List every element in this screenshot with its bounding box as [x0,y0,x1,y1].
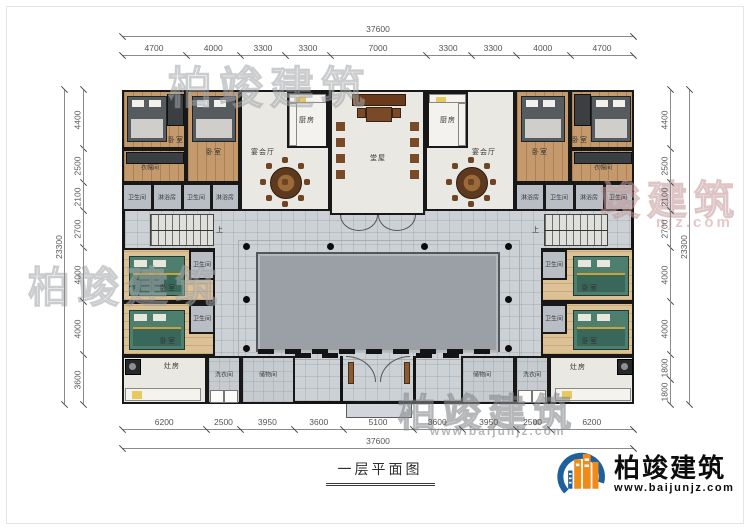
bed [129,310,185,350]
room-label-storage: 储物间 [473,370,491,379]
hall-altar-table [352,94,406,106]
room-label-storage: 储物间 [259,370,277,379]
room-label-bath: 卫生间 [545,260,563,269]
column-marker [243,345,250,352]
room-label-bath: 卫生间 [550,193,568,202]
stair-up-label: 上 [532,225,540,235]
dimension-chain-left: 233004400250021002700400040003600 [54,90,88,404]
courtyard [256,252,500,352]
room-label-bath: 卫生间 [193,314,211,323]
room-label-stove: 灶房 [570,362,586,372]
stair-up-label: 上 [216,225,224,235]
room-label-bedroom: 卧室 [582,336,598,346]
room-label-cloak: 衣帽间 [141,163,159,172]
room-label-hall: 堂屋 [370,153,386,163]
chair [392,108,401,118]
washer [518,390,532,403]
stove [617,359,633,375]
column-marker [421,243,428,250]
hall-chair-row-left [336,122,345,184]
stove-room-counter [555,388,631,401]
dimension-chain-bottom: 6200250039503600510036003950250062003760… [122,417,634,451]
floor-plan-sheet: 卧室 卧室 衣帽间 卫生间 淋浴房 卫生间 淋浴房 厨房 宴会厅 堂屋 厨房 宴… [0,0,750,530]
column-marker [505,345,512,352]
washer [224,390,238,403]
hall-square-table [366,107,392,122]
dimension-chain-top: 3760047004000330033007000330033004000470… [122,24,634,58]
drawing-title-text: 一层平面图 [326,459,435,486]
column-marker [505,296,512,303]
brand-name: 柏竣建筑 [614,454,735,482]
room-label-bath: 卫生间 [193,260,211,269]
column-marker [505,243,512,250]
wardrobe [167,94,184,126]
bed [192,96,236,142]
room-storage-left [241,356,295,404]
corridor-wall-right [416,353,461,358]
room-label-banquet: 宴会厅 [251,147,275,157]
room-label-shower: 淋浴房 [216,193,234,202]
staircase-right [544,214,608,246]
kitchen-counter [458,103,466,146]
chair [357,108,366,118]
stove-room-counter [125,388,201,401]
room-label-bedroom: 卧室 [572,135,588,145]
brand-logo-icon [556,448,608,500]
hall-chair-row-right [410,122,419,184]
courtyard-south-wall [258,349,498,354]
bed [521,96,565,142]
room-label-shower: 淋浴房 [521,193,539,202]
room-label-bath: 卫生间 [187,193,205,202]
stove [125,359,141,375]
room-label-kitchen: 厨房 [299,115,315,125]
bed [129,256,185,296]
entry-door-leaf-left [348,362,354,384]
room-label-kitchen: 厨房 [440,115,456,125]
room-label-bedroom: 卧室 [582,283,598,293]
bed [591,96,631,142]
room-label-banquet: 宴会厅 [472,147,496,157]
bed [127,96,167,142]
room-label-bath: 卫生间 [609,193,627,202]
kitchen-counter [289,94,326,103]
room-label-shower: 淋浴房 [158,193,176,202]
room-label-laundry: 洗衣间 [215,370,233,379]
entry-porch [346,404,412,418]
brand-logo: 柏竣建筑 www.baijunjz.com [556,448,744,500]
round-dining-table [270,167,302,199]
room-label-bedroom: 卧室 [160,283,176,293]
round-dining-table [456,167,488,199]
room-storage-right [461,356,515,404]
room-label-bath: 卫生间 [128,193,146,202]
column-marker [243,296,250,303]
staircase-left [150,214,214,246]
washer [532,390,546,403]
dimension-chain-right: 4400250021002700400040001800180023300 [660,90,694,404]
room-label-bedroom: 卧室 [532,147,548,157]
room-label-laundry: 洗衣间 [523,370,541,379]
column-marker [327,243,334,250]
wardrobe [574,94,591,126]
brand-url: www.baijunjz.com [614,482,735,494]
column-marker [243,243,250,250]
room-label-stove: 灶房 [164,361,180,371]
corridor-wall-left [295,353,340,358]
room-label-bedroom: 卧室 [206,147,222,157]
kitchen-counter [289,103,297,146]
washer [210,390,224,403]
room-label-shower: 淋浴房 [580,193,598,202]
drawing-title: 一层平面图 [300,459,460,486]
room-label-cloak: 衣帽间 [594,163,612,172]
entry-door-leaf-right [404,362,410,384]
kitchen-counter [429,94,466,103]
room-label-bath: 卫生间 [545,314,563,323]
room-label-bedroom: 卧室 [160,336,176,346]
room-label-bedroom: 卧室 [168,135,184,145]
